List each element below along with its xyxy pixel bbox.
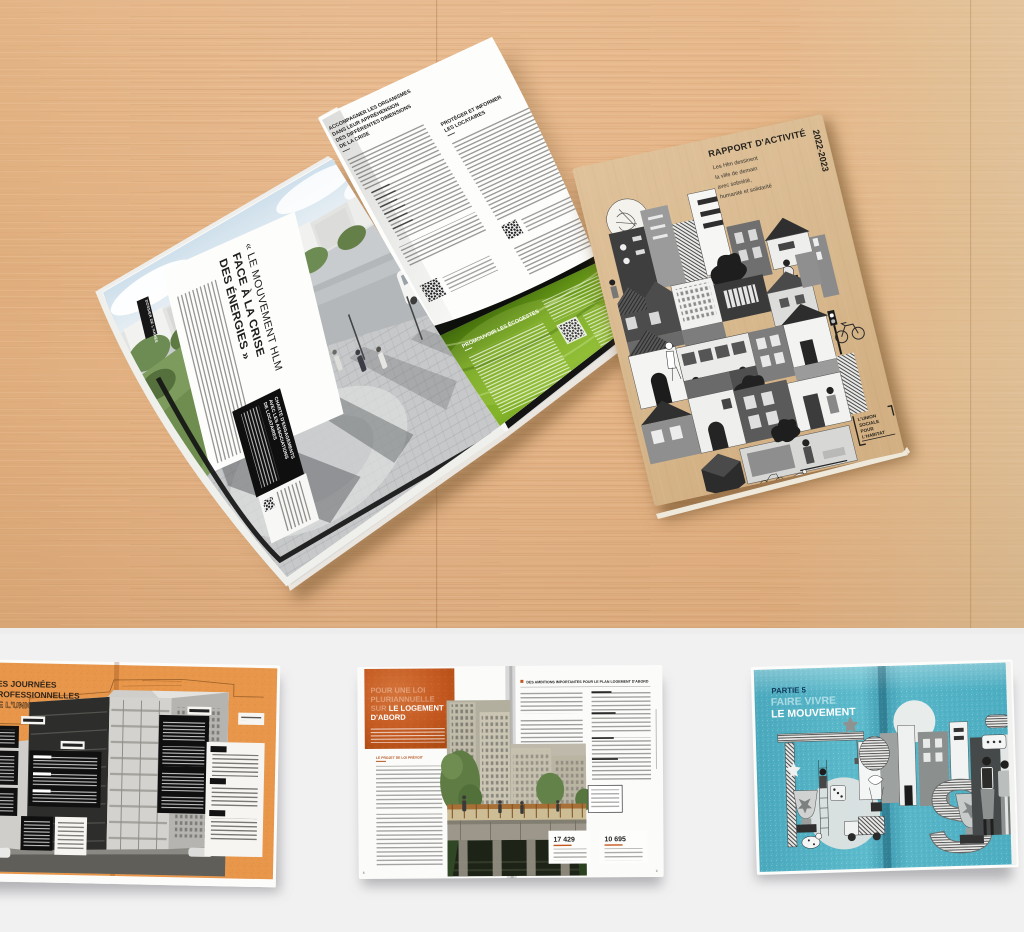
- svg-text:PARTIE 5: PARTIE 5: [771, 685, 806, 695]
- svg-text:DES AMBITIONS IMPORTANTES POUR: DES AMBITIONS IMPORTANTES POUR LE PLAN L…: [526, 680, 648, 685]
- svg-text:9: 9: [656, 869, 658, 873]
- svg-text:POUR UNE LOI: POUR UNE LOI: [370, 686, 425, 695]
- svg-text:LES JOURNÉES: LES JOURNÉES: [0, 677, 57, 689]
- svg-text:SUR LE LOGEMENT: SUR LE LOGEMENT: [371, 703, 444, 713]
- svg-text:8: 8: [363, 871, 365, 875]
- svg-text:D'ABORD: D'ABORD: [371, 713, 407, 722]
- svg-text:10 695: 10 695: [604, 836, 626, 843]
- svg-text:PLURIANNUELLE: PLURIANNUELLE: [370, 695, 434, 704]
- svg-text:17 429: 17 429: [553, 837, 575, 844]
- svg-text:LE MOUVEMENT: LE MOUVEMENT: [771, 706, 856, 721]
- svg-text:LE PROJET DE LOI PRÉVOIT: LE PROJET DE LOI PRÉVOIT: [376, 755, 424, 760]
